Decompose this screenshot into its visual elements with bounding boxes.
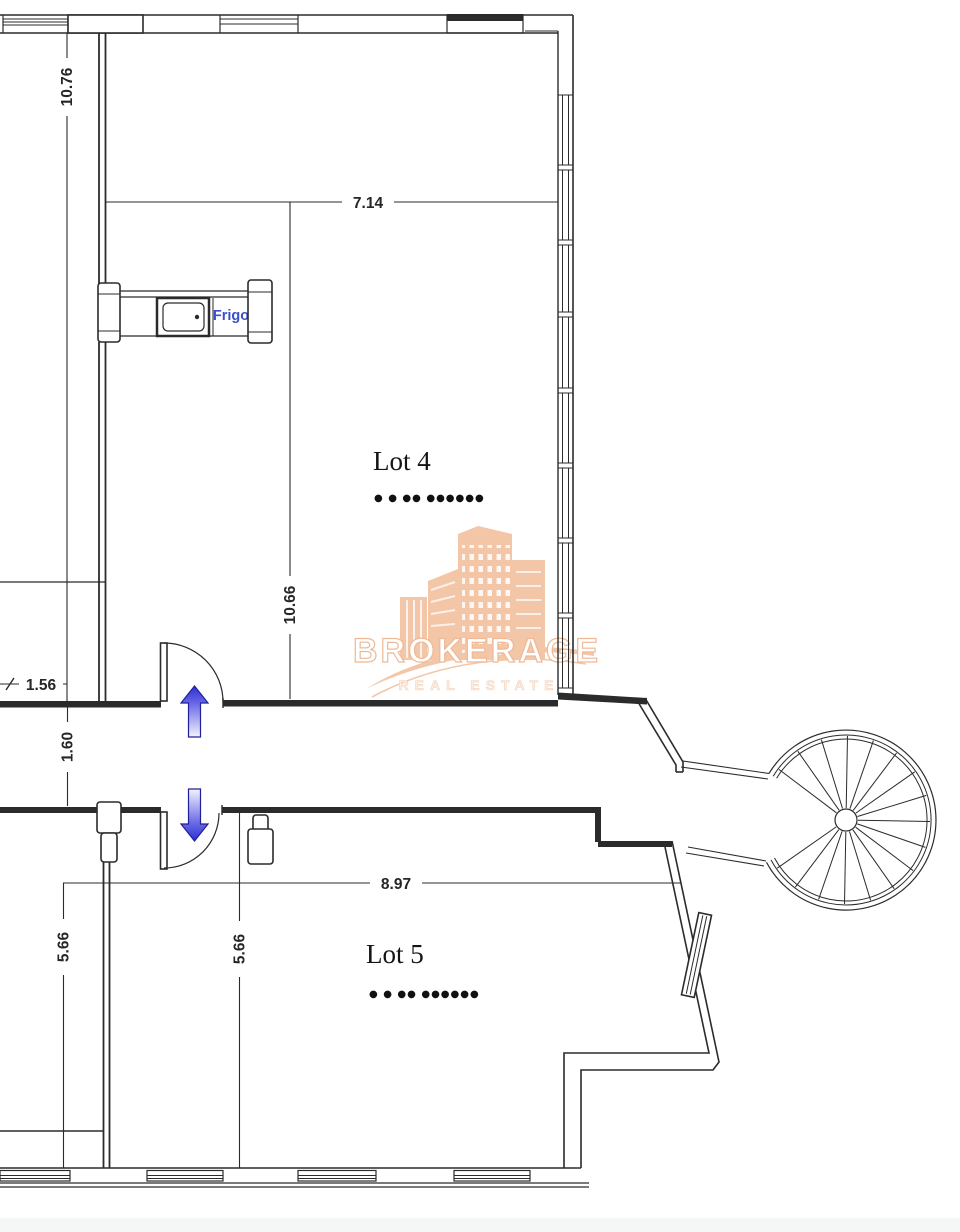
top-wall bbox=[0, 14, 573, 33]
pilaster-right bbox=[248, 815, 273, 864]
spiral-staircase bbox=[681, 730, 936, 910]
brokerage-watermark: BROKERAGE REAL ESTATE bbox=[353, 526, 601, 697]
pilaster-left bbox=[97, 802, 121, 862]
wall-pier bbox=[68, 15, 143, 33]
svg-text:5.66: 5.66 bbox=[56, 932, 73, 963]
right-wall-windows bbox=[558, 95, 573, 688]
lot4-label: Lot 4 bbox=[373, 446, 431, 476]
window-top-left bbox=[3, 15, 68, 33]
stair-center-post bbox=[835, 809, 857, 831]
kitchen-cabinet-right bbox=[248, 280, 272, 343]
svg-text:10.76: 10.76 bbox=[59, 67, 76, 106]
window-bottom-3 bbox=[298, 1171, 376, 1182]
window-top-mid bbox=[220, 15, 298, 33]
window-bottom-4 bbox=[454, 1171, 530, 1182]
watermark-subtitle: REAL ESTATE bbox=[399, 677, 560, 693]
svg-text:5.66: 5.66 bbox=[232, 934, 249, 965]
floor-plan: BROKERAGE REAL ESTATE bbox=[0, 0, 960, 1232]
window-bottom-2 bbox=[147, 1171, 223, 1182]
svg-text:7.14: 7.14 bbox=[353, 195, 384, 212]
sink-faucet-dot bbox=[195, 315, 199, 319]
interior-double-wall bbox=[99, 33, 110, 1168]
svg-text:1.60: 1.60 bbox=[60, 732, 77, 762]
floor-plan-page: BROKERAGE REAL ESTATE bbox=[0, 0, 960, 1232]
dim-lot5-width: 8.97 bbox=[63, 873, 681, 893]
lot5-slant-wall-inner bbox=[564, 847, 709, 1168]
window-bottom-1 bbox=[0, 1171, 70, 1182]
svg-text:10.66: 10.66 bbox=[282, 585, 299, 624]
corridor-upper-wall bbox=[0, 693, 683, 773]
watermark-title: BROKERAGE bbox=[353, 632, 601, 670]
lot5-redacted-dots: ● ● ●● ●●●●●● bbox=[369, 989, 480, 1000]
bottom-wall bbox=[0, 1168, 589, 1187]
window-top-right bbox=[447, 14, 523, 33]
arrow-up-icon bbox=[181, 686, 208, 737]
svg-text:1.56: 1.56 bbox=[26, 677, 57, 694]
dim-lot4-width: 7.14 bbox=[106, 190, 558, 212]
arrow-down-icon bbox=[181, 789, 208, 841]
dim-entry-width: 1.56 bbox=[0, 675, 67, 694]
dim-lot5-height-left: 5.66 bbox=[53, 883, 73, 1168]
door-leaf bbox=[161, 643, 168, 701]
dim-lot4-height: 10.66 bbox=[280, 202, 299, 699]
right-wall bbox=[558, 15, 573, 695]
dim-corridor-width: 1.60 bbox=[57, 707, 77, 806]
fridge-label: Frigo bbox=[213, 308, 249, 324]
lot5-label: Lot 5 bbox=[366, 939, 424, 969]
slant-window bbox=[681, 913, 711, 998]
kitchen-cabinet-left bbox=[98, 283, 120, 342]
door-leaf bbox=[161, 812, 168, 869]
lot4-redacted-dots: ● ● ●● ●●●●●● bbox=[374, 493, 485, 504]
page-bottom-strip bbox=[0, 1218, 960, 1232]
dim-lot5-height-mid: 5.66 bbox=[229, 813, 249, 1168]
kitchen-counter: Frigo bbox=[98, 280, 272, 343]
svg-text:8.97: 8.97 bbox=[381, 876, 411, 893]
stair-handrails bbox=[681, 761, 769, 866]
dim-left-height: 10.76 bbox=[56, 33, 76, 702]
